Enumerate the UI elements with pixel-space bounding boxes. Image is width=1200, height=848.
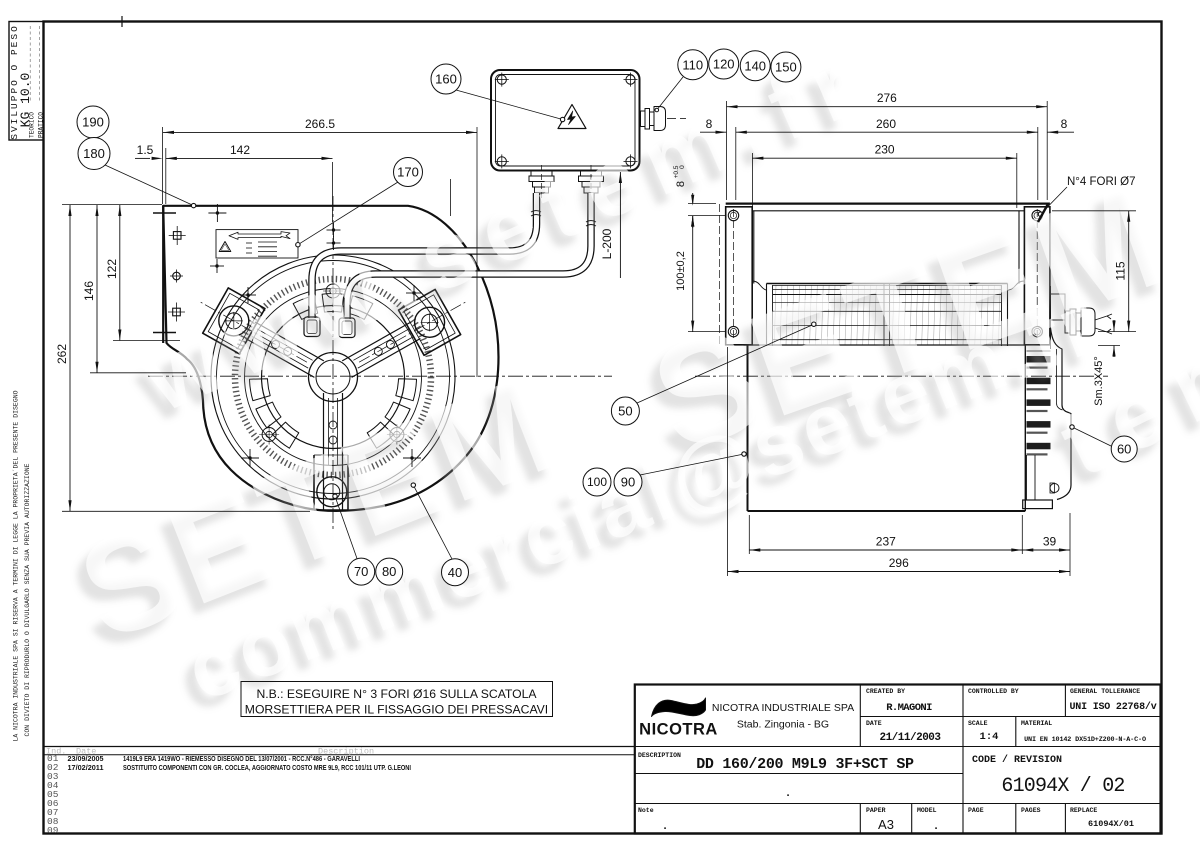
svg-text:1:4: 1:4 — [980, 731, 999, 743]
svg-text:8: 8 — [706, 117, 713, 131]
svg-text:MODEL: MODEL — [917, 807, 937, 814]
svg-text:122: 122 — [105, 259, 119, 279]
svg-text:GENERAL TOLLERANCE: GENERAL TOLLERANCE — [1070, 688, 1140, 695]
svg-text:180: 180 — [83, 146, 105, 161]
svg-text:Sm.3X45°: Sm.3X45° — [1093, 356, 1105, 406]
svg-text:90: 90 — [621, 475, 635, 490]
svg-text:PRATICO: PRATICO — [38, 112, 45, 138]
svg-text:R.MAGONI: R.MAGONI — [886, 702, 932, 714]
svg-text:UNI EN 10142 DX51D+Z200-N-A-C-: UNI EN 10142 DX51D+Z200-N-A-C-O — [1024, 736, 1146, 744]
svg-text:N.B.: ESEGUIRE N° 3 FORI Ø16 S: N.B.: ESEGUIRE N° 3 FORI Ø16 SULLA SCATO… — [256, 687, 537, 701]
svg-text:.: . — [933, 821, 940, 833]
svg-text:N°4 FORI Ø7: N°4 FORI Ø7 — [1067, 176, 1136, 188]
svg-text:61094X / 02: 61094X / 02 — [1001, 775, 1124, 798]
svg-text:DD 160/200 M9L9 3F+SCT SP: DD 160/200 M9L9 3F+SCT SP — [696, 756, 914, 773]
svg-text:PAGES: PAGES — [1021, 807, 1041, 814]
svg-text:Note: Note — [638, 807, 654, 814]
svg-text:80: 80 — [382, 564, 396, 579]
svg-text:50: 50 — [618, 404, 632, 419]
svg-text:PAGE: PAGE — [968, 807, 984, 814]
svg-text:UNI ISO 22768/v: UNI ISO 22768/v — [1069, 701, 1156, 713]
svg-text:TEORICO: TEORICO — [29, 112, 36, 138]
svg-text:260: 260 — [876, 117, 896, 131]
svg-text:230: 230 — [875, 143, 895, 157]
svg-text:21/11/2003: 21/11/2003 — [879, 732, 941, 744]
svg-text:NICOTRA INDUSTRIALE SPA: NICOTRA INDUSTRIALE SPA — [712, 702, 854, 714]
svg-text:REPLACE: REPLACE — [1070, 807, 1097, 814]
svg-text:115: 115 — [1114, 261, 1128, 280]
svg-text:160: 160 — [435, 72, 457, 87]
svg-text:LA NICOTRA INDUSTRIALE SPA SI: LA NICOTRA INDUSTRIALE SPA SI RISERVA A … — [13, 390, 20, 741]
svg-text:SCALE: SCALE — [968, 720, 988, 727]
svg-text:SOSTITUITO COMPONENTI CON GR.: SOSTITUITO COMPONENTI CON GR. COCLEA, AG… — [123, 763, 411, 772]
svg-text:.: . — [662, 821, 669, 833]
svg-text:DESCRIPTION: DESCRIPTION — [638, 752, 681, 759]
svg-text:262: 262 — [55, 344, 69, 364]
svg-text:17/02/2011: 17/02/2011 — [68, 763, 104, 772]
svg-text:100: 100 — [587, 475, 607, 489]
svg-text:A3: A3 — [878, 817, 894, 832]
svg-text:146: 146 — [82, 281, 96, 301]
svg-text:296: 296 — [889, 556, 909, 570]
svg-text:1419L9 ERA 1419WO - RIEMESSO D: 1419L9 ERA 1419WO - RIEMESSO DISEGNO DEL… — [123, 754, 360, 763]
svg-text:NICOTRA: NICOTRA — [639, 721, 718, 739]
svg-text:09: 09 — [47, 825, 59, 836]
svg-text:8: 8 — [1061, 117, 1068, 131]
svg-text:Stab. Zingonia - BG: Stab. Zingonia - BG — [737, 719, 829, 731]
svg-text:MORSETTIERA PER IL FISSAGGIO D: MORSETTIERA PER IL FISSAGGIO DEI PRESSAC… — [245, 703, 548, 717]
svg-text:276: 276 — [877, 91, 897, 105]
svg-text:CODE / REVISION: CODE / REVISION — [972, 754, 1062, 766]
svg-text:60: 60 — [1117, 442, 1131, 457]
svg-text:150: 150 — [775, 60, 797, 75]
svg-text:MATERIAL: MATERIAL — [1021, 720, 1052, 727]
svg-text:8: 8 — [675, 181, 687, 187]
svg-text:120: 120 — [713, 57, 735, 72]
svg-text:CON DIVIETO DI RIPRODURLO O DI: CON DIVIETO DI RIPRODURLO O DIVULGARLO S… — [24, 463, 31, 736]
svg-text:170: 170 — [397, 165, 419, 180]
svg-text:CONTROLLED BY: CONTROLLED BY — [968, 688, 1019, 695]
svg-text:70: 70 — [354, 564, 368, 579]
svg-text:266.5: 266.5 — [305, 117, 335, 131]
svg-text:40: 40 — [448, 565, 462, 580]
svg-text:23/09/2005: 23/09/2005 — [68, 754, 104, 763]
svg-text:237: 237 — [876, 535, 896, 549]
svg-text:190: 190 — [82, 115, 104, 130]
svg-text:142: 142 — [230, 143, 250, 157]
svg-text:1.5: 1.5 — [137, 143, 154, 157]
svg-text:140: 140 — [744, 58, 766, 73]
svg-text:100±0,2: 100±0,2 — [675, 251, 687, 291]
svg-text:110: 110 — [682, 57, 703, 72]
svg-text:0: 0 — [679, 165, 686, 169]
svg-text:PAPER: PAPER — [866, 807, 886, 814]
svg-text:DATE: DATE — [866, 720, 882, 727]
svg-text:.: . — [785, 788, 792, 800]
svg-text:L-200: L-200 — [600, 228, 614, 259]
svg-text:39: 39 — [1043, 535, 1057, 549]
svg-text:CREATED BY: CREATED BY — [866, 688, 905, 695]
svg-text:61094X/01: 61094X/01 — [1088, 819, 1134, 829]
